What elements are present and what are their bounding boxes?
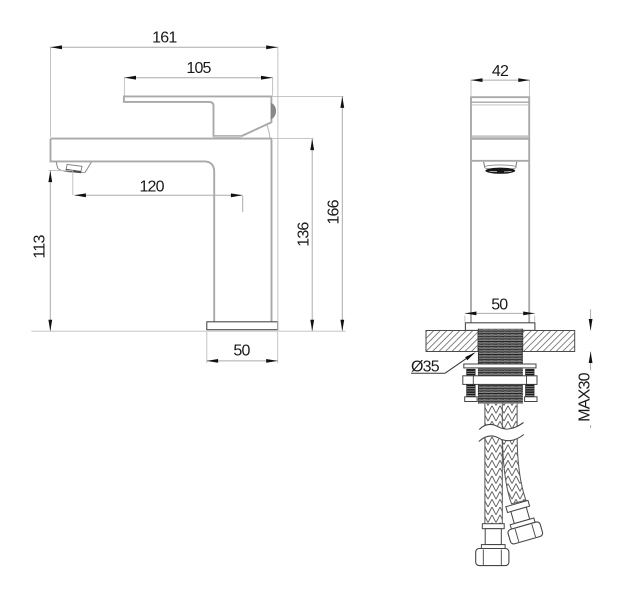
svg-text:50: 50 — [491, 296, 508, 313]
svg-text:42: 42 — [492, 63, 509, 80]
svg-text:105: 105 — [186, 60, 211, 77]
svg-text:136: 136 — [295, 222, 312, 247]
svg-text:120: 120 — [139, 178, 164, 195]
svg-text:113: 113 — [32, 235, 49, 259]
svg-text:MAX30: MAX30 — [577, 372, 594, 421]
svg-text:161: 161 — [152, 29, 177, 46]
svg-text:50: 50 — [233, 343, 250, 360]
svg-text:166: 166 — [325, 199, 342, 224]
svg-text:Ø35: Ø35 — [411, 358, 440, 375]
